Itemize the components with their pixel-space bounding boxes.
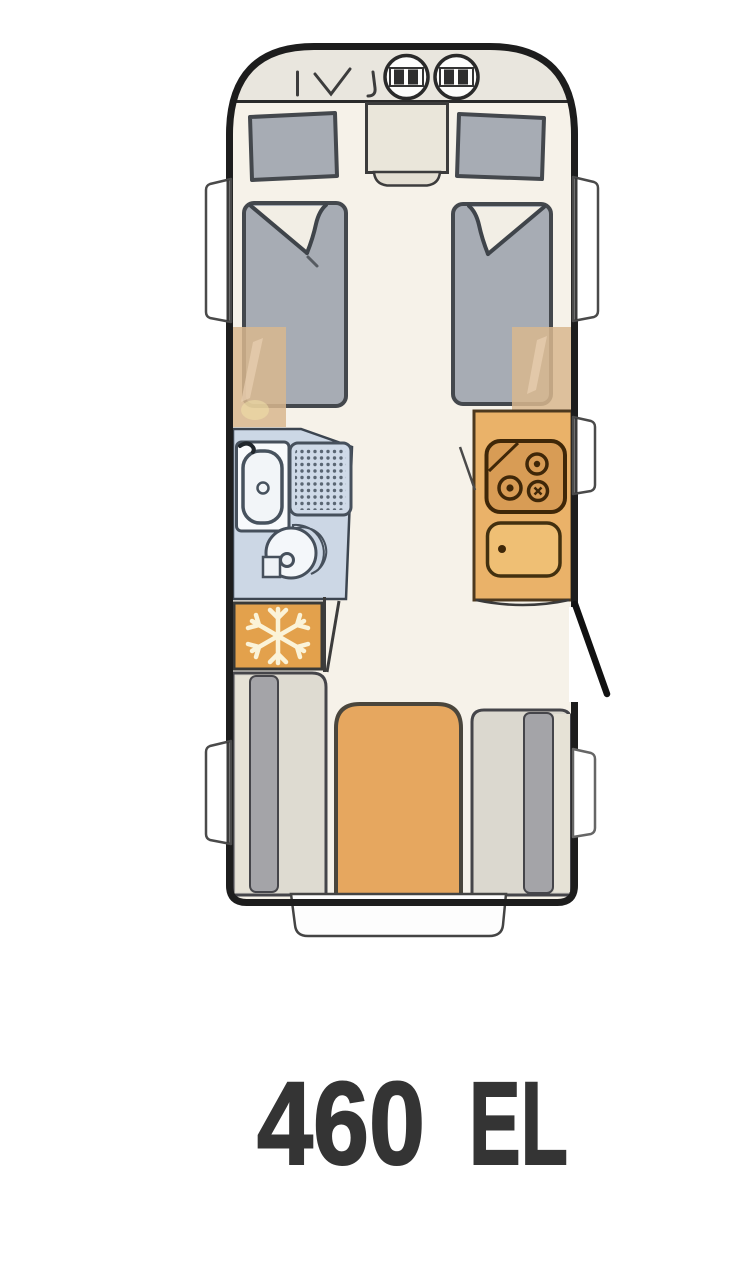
svg-text:460: 460 (257, 1058, 425, 1190)
svg-text:EL: EL (469, 1058, 568, 1190)
